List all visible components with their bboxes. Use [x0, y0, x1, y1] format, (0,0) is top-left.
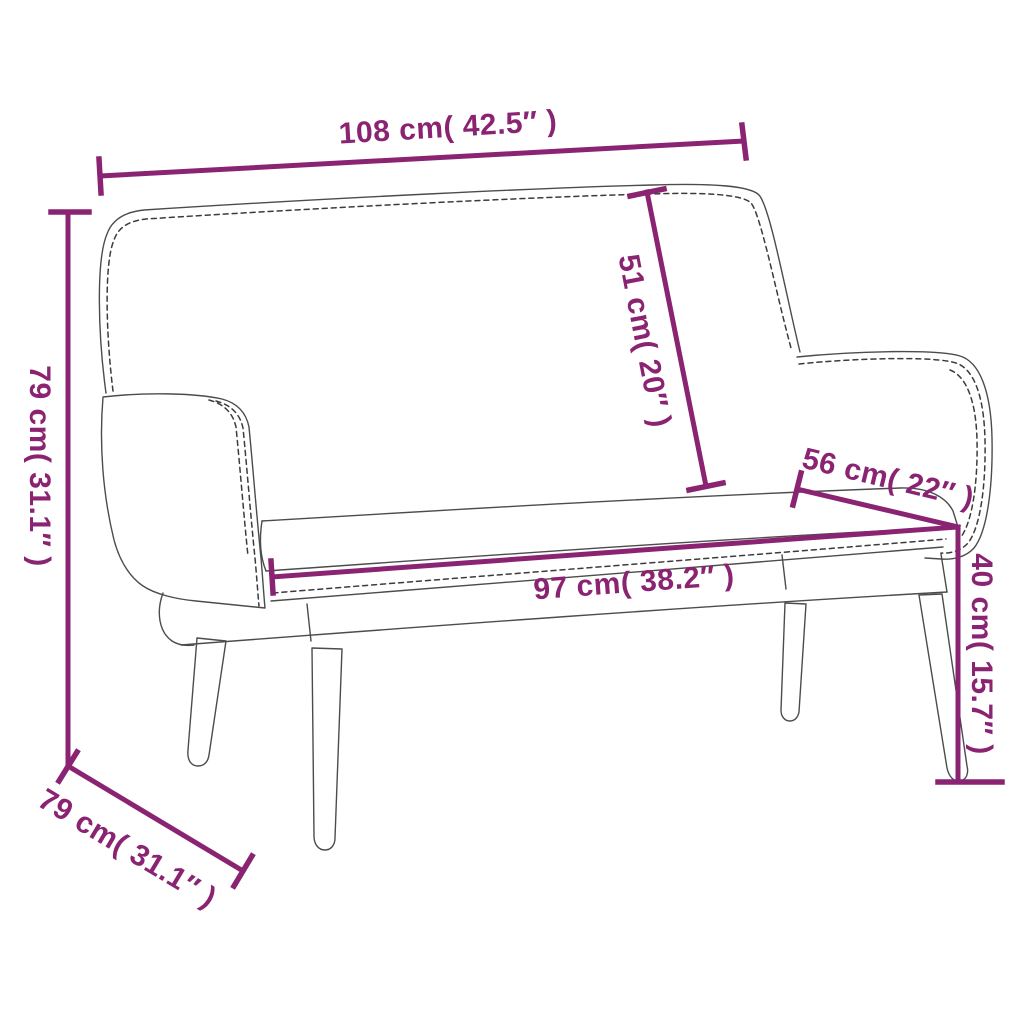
dim-label-overall-height: 79 cm( 31.1″ ): [22, 365, 56, 566]
backrest-outline: [99, 184, 800, 393]
dimension-diagram: 108 cm( 42.5″ ) 79 cm( 31.1″ ) 51 cm( 20…: [0, 0, 1024, 1024]
overall-width-tick-right: [742, 125, 746, 158]
overall-depth-tick-bottom: [234, 856, 252, 886]
front-left-leg: [312, 648, 342, 850]
backrest-height-tick-top: [630, 189, 664, 196]
left-armrest-stitch-outer: [216, 401, 259, 606]
seat-width-tick-left: [271, 561, 273, 593]
backrest-stitch-line: [107, 193, 791, 391]
backrest-height-tick-bottom: [689, 483, 723, 490]
seat-depth-tick-left: [793, 473, 801, 505]
dim-label-seat-height: 40 cm( 15.7″ ): [964, 553, 998, 754]
overall-width-tick-left: [99, 159, 101, 193]
back-left-leg: [188, 638, 226, 766]
bench-legs: [188, 594, 968, 850]
back-right-leg: [781, 603, 806, 721]
left-armrest-outline: [101, 394, 265, 608]
seat-cushion-top-edge: [262, 488, 958, 527]
